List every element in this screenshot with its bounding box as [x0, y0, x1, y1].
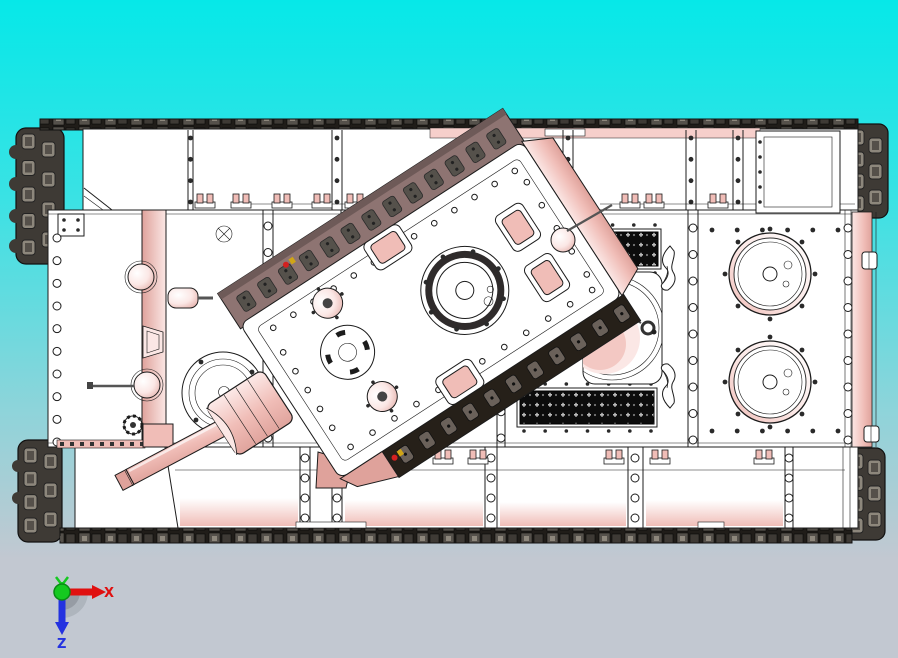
- stamped-detail: [758, 185, 762, 189]
- stamped-detail: [22, 134, 35, 149]
- stamped-detail: [735, 228, 740, 233]
- stamped-detail: [836, 228, 841, 233]
- stamped-detail: [785, 494, 793, 502]
- stamped-detail: [22, 187, 35, 202]
- stamped-detail: [868, 460, 881, 475]
- stamped-detail: [736, 178, 741, 183]
- stamped-detail: [631, 494, 639, 502]
- stamped-detail: [869, 190, 882, 205]
- stamped-detail: [53, 257, 61, 265]
- stamped-detail: [53, 302, 61, 310]
- stamped-detail: [53, 415, 61, 423]
- stamped-detail: [689, 136, 694, 141]
- stamped-detail: [760, 429, 765, 434]
- stamped-detail: [335, 136, 340, 141]
- stamped-detail: [758, 155, 762, 159]
- track-left-bottom: [12, 440, 62, 542]
- stamped-detail: [844, 330, 852, 338]
- stamped-detail: [844, 383, 852, 391]
- tow-hook-lower: [864, 426, 879, 442]
- stamped-detail: [810, 429, 815, 434]
- stamped-detail: [710, 228, 715, 233]
- stamped-detail: [785, 474, 793, 482]
- stamped-detail: [689, 436, 697, 444]
- stamped-detail: [628, 429, 632, 433]
- cad-viewport[interactable]: X Z: [0, 0, 898, 658]
- stamped-detail: [42, 142, 55, 157]
- stamped-detail: [44, 454, 57, 469]
- star-vent: [216, 226, 232, 242]
- stamped-detail: [301, 474, 309, 482]
- stamped-detail: [689, 277, 697, 285]
- stamped-detail: [810, 228, 815, 233]
- stamped-detail: [335, 157, 340, 162]
- stamped-detail: [565, 429, 569, 433]
- stamped-detail: [333, 514, 341, 522]
- stamped-detail: [543, 429, 547, 433]
- stamped-detail: [689, 383, 697, 391]
- stamped-detail: [264, 222, 272, 230]
- stamped-detail: [844, 410, 852, 418]
- stamped-detail: [22, 161, 35, 176]
- stamped-detail: [844, 357, 852, 365]
- stamped-detail: [844, 251, 852, 259]
- stamped-detail: [736, 200, 741, 205]
- stamped-detail: [188, 157, 193, 162]
- stamped-detail: [689, 178, 694, 183]
- track-strip-bottom: [60, 528, 852, 543]
- stamped-detail: [566, 136, 571, 141]
- stamped-detail: [785, 514, 793, 522]
- stamped-detail: [631, 454, 639, 462]
- stamped-detail: [785, 228, 790, 233]
- stamped-detail: [689, 357, 697, 365]
- rear-pink-edge: [852, 212, 872, 447]
- stamped-detail: [335, 178, 340, 183]
- stamped-detail: [785, 454, 793, 462]
- stamped-detail: [53, 347, 61, 355]
- cad-canvas[interactable]: X Z: [0, 0, 898, 658]
- stamped-detail: [689, 157, 694, 162]
- stamped-detail: [53, 393, 61, 401]
- stamped-detail: [53, 234, 61, 242]
- stamped-detail: [631, 474, 639, 482]
- stamped-detail: [188, 136, 193, 141]
- tank-model[interactable]: [9, 94, 888, 543]
- stamped-detail: [689, 330, 697, 338]
- stamped-detail: [565, 382, 569, 386]
- driver-viewport: [143, 326, 163, 358]
- stamped-detail: [758, 140, 762, 144]
- stamped-detail: [188, 200, 193, 205]
- stamped-detail: [689, 224, 697, 232]
- stamped-detail: [53, 279, 61, 287]
- stamped-detail: [22, 240, 35, 255]
- stamped-detail: [689, 251, 697, 259]
- stamped-detail: [760, 228, 765, 233]
- stamped-detail: [844, 304, 852, 312]
- stamped-detail: [631, 514, 639, 522]
- headlight-lower: [131, 369, 163, 401]
- stamped-detail: [735, 429, 740, 434]
- stamped-detail: [22, 214, 35, 229]
- stamped-detail: [24, 495, 37, 510]
- stamped-detail: [188, 178, 193, 183]
- stamped-detail: [758, 200, 762, 204]
- stamped-detail: [758, 170, 762, 174]
- stamped-detail: [844, 436, 852, 444]
- stamped-detail: [869, 138, 882, 153]
- stamped-detail: [487, 514, 495, 522]
- stamped-detail: [736, 157, 741, 162]
- stamped-detail: [301, 454, 309, 462]
- stamped-detail: [844, 277, 852, 285]
- stamped-detail: [653, 223, 657, 227]
- stamped-detail: [522, 429, 526, 433]
- stamped-detail: [689, 410, 697, 418]
- stamped-detail: [649, 429, 653, 433]
- stamped-detail: [689, 304, 697, 312]
- axis-x-label: X: [104, 586, 114, 601]
- stamped-detail: [844, 224, 852, 232]
- stamped-detail: [497, 434, 505, 442]
- stamped-detail: [53, 370, 61, 378]
- stamped-detail: [264, 249, 272, 257]
- stamped-detail: [24, 471, 37, 486]
- triad-origin[interactable]: [54, 584, 70, 600]
- rear-hatch-lower: [723, 335, 818, 430]
- stamped-detail: [632, 223, 636, 227]
- stamped-detail: [24, 518, 37, 533]
- stamped-detail: [785, 429, 790, 434]
- stamped-detail: [836, 429, 841, 434]
- rear-hatch-upper: [723, 227, 818, 322]
- stamped-detail: [868, 486, 881, 501]
- stamped-detail: [868, 512, 881, 527]
- stamped-detail: [611, 223, 615, 227]
- stamped-detail: [335, 200, 340, 205]
- stamped-detail: [24, 448, 37, 463]
- stamped-detail: [44, 483, 57, 498]
- gear-wheel: [124, 416, 142, 434]
- stamped-detail: [487, 494, 495, 502]
- stamped-detail: [487, 474, 495, 482]
- stamped-detail: [689, 200, 694, 205]
- stamped-detail: [607, 429, 611, 433]
- stamped-detail: [42, 172, 55, 187]
- stamped-detail: [301, 514, 309, 522]
- stamped-detail: [44, 512, 57, 527]
- headlight-upper: [125, 261, 157, 293]
- stamped-detail: [736, 136, 741, 141]
- stamped-detail: [869, 164, 882, 179]
- stamped-detail: [586, 429, 590, 433]
- stamped-detail: [301, 494, 309, 502]
- tow-hook-upper: [862, 252, 877, 269]
- stamped-detail: [710, 429, 715, 434]
- stamped-detail: [333, 494, 341, 502]
- rear-panel: [756, 131, 840, 213]
- stamped-detail: [53, 325, 61, 333]
- axis-z-label: Z: [57, 637, 66, 652]
